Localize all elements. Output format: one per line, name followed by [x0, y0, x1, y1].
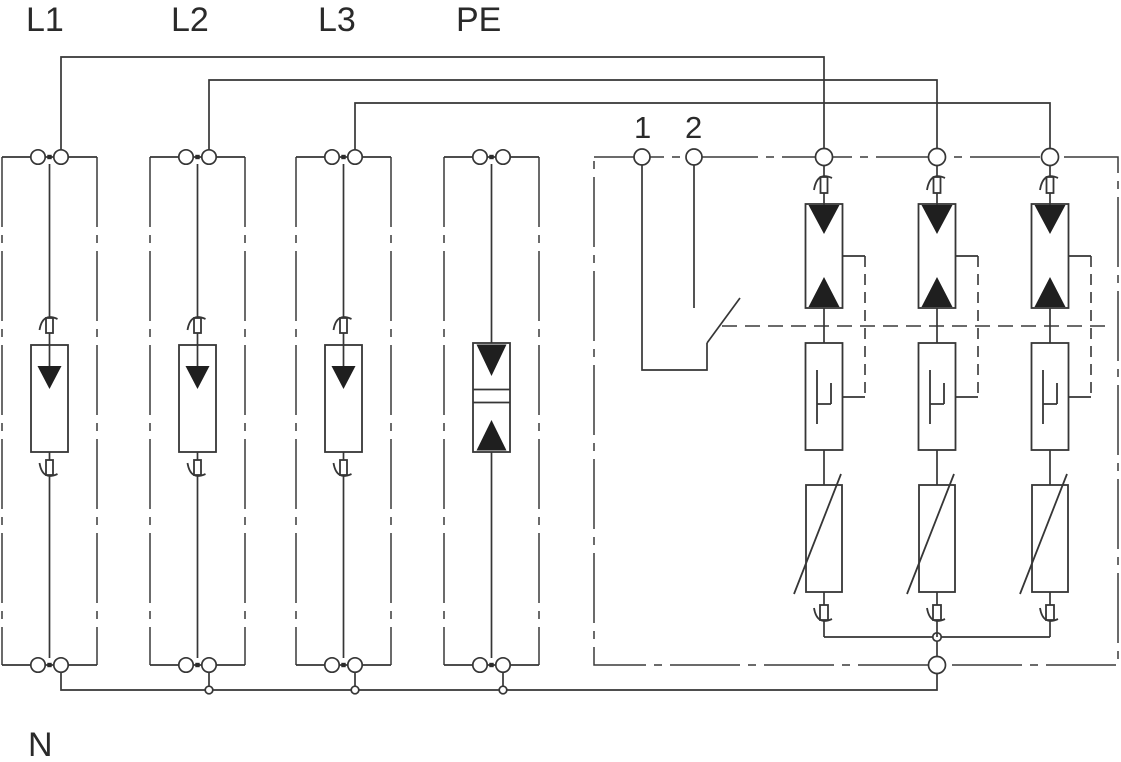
label-contact-2: 2 [685, 110, 702, 145]
label-l1: L1 [26, 1, 64, 39]
label-pe: PE [456, 1, 501, 39]
terminal-2-icon [686, 149, 702, 165]
junction-node-icon [351, 686, 359, 694]
junction-node-icon [205, 686, 213, 694]
label-contact-1: 1 [634, 110, 651, 145]
terminal-1-icon [634, 149, 650, 165]
label-l3: L3 [318, 1, 356, 39]
junction-node-icon [499, 686, 507, 694]
n-terminal-icon [929, 657, 946, 674]
schematic-canvas: L1 L2 L3 PE N 1 2 [0, 0, 1121, 762]
label-n: N [28, 726, 53, 762]
label-l2: L2 [171, 1, 209, 39]
schematic-page: L1 L2 L3 PE N 1 2 [0, 0, 1121, 762]
